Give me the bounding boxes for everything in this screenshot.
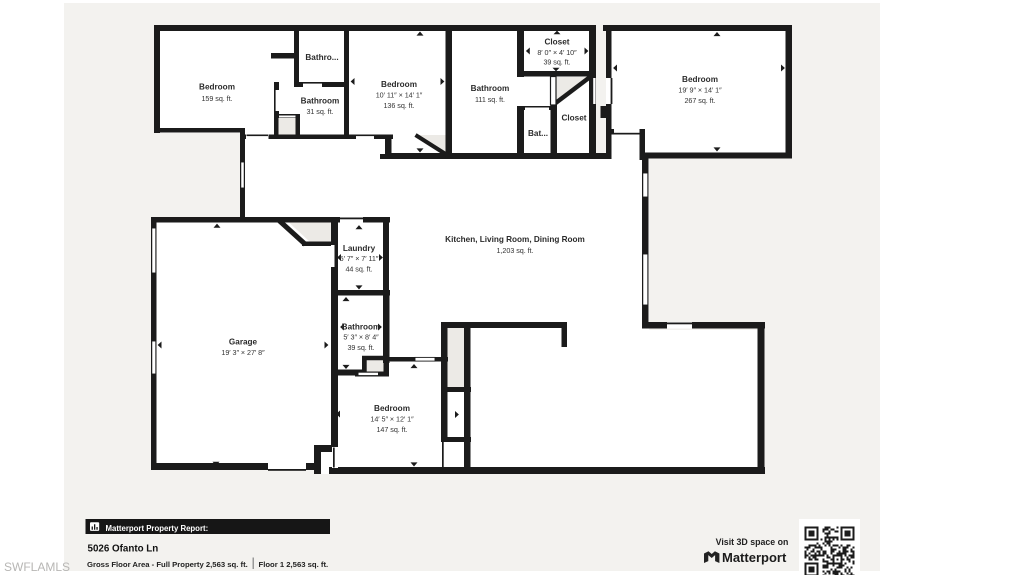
svg-text:Bedroom: Bedroom	[199, 83, 235, 92]
svg-text:136 sq. ft.: 136 sq. ft.	[383, 101, 414, 110]
svg-text:31 sq. ft.: 31 sq. ft.	[306, 107, 333, 116]
svg-text:Bathro...: Bathro...	[305, 53, 338, 62]
svg-text:Bathroom: Bathroom	[342, 323, 381, 332]
svg-text:5026 Ofanto Ln: 5026 Ofanto Ln	[88, 544, 159, 555]
svg-text:5′ 3″ × 8′ 4″: 5′ 3″ × 8′ 4″	[343, 333, 379, 342]
svg-text:Closet: Closet	[561, 114, 586, 123]
svg-text:Kitchen, Living Room, Dining R: Kitchen, Living Room, Dining Room	[445, 235, 585, 244]
svg-text:Bedroom: Bedroom	[381, 80, 417, 89]
svg-text:Matterport: Matterport	[722, 550, 787, 565]
svg-text:39 sq. ft.: 39 sq. ft.	[543, 58, 570, 67]
svg-text:Closet: Closet	[544, 38, 569, 47]
svg-text:10′ 11″ × 14′ 1″: 10′ 11″ × 14′ 1″	[376, 91, 423, 100]
svg-text:1,203 sq. ft.: 1,203 sq. ft.	[497, 246, 534, 255]
svg-text:14′ 5″ × 12′ 1″: 14′ 5″ × 12′ 1″	[370, 415, 414, 424]
svg-text:159 sq. ft.: 159 sq. ft.	[201, 94, 232, 103]
svg-text:19′ 3″ × 27′ 8″: 19′ 3″ × 27′ 8″	[221, 348, 265, 357]
svg-text:111 sq. ft.: 111 sq. ft.	[475, 95, 505, 104]
svg-text:Garage: Garage	[229, 338, 258, 347]
svg-text:39 sq. ft.: 39 sq. ft.	[347, 343, 374, 352]
svg-text:Laundry: Laundry	[343, 244, 376, 253]
svg-text:44 sq. ft.: 44 sq. ft.	[345, 265, 372, 274]
svg-text:Bedroom: Bedroom	[682, 75, 718, 84]
svg-text:Bat...: Bat...	[528, 129, 548, 138]
svg-text:Bedroom: Bedroom	[374, 404, 410, 413]
svg-text:SWFLAMLS: SWFLAMLS	[4, 560, 70, 574]
svg-text:147 sq. ft.: 147 sq. ft.	[376, 425, 407, 434]
svg-text:Bathroom: Bathroom	[301, 97, 340, 106]
svg-text:19′ 9″ × 14′ 1″: 19′ 9″ × 14′ 1″	[678, 86, 722, 95]
svg-text:Floor 1 2,563 sq. ft.: Floor 1 2,563 sq. ft.	[259, 560, 329, 569]
svg-text:267 sq. ft.: 267 sq. ft.	[684, 96, 715, 105]
svg-text:Visit 3D space on: Visit 3D space on	[716, 537, 789, 547]
svg-text:Matterport Property Report:: Matterport Property Report:	[106, 524, 209, 533]
svg-text:Bathroom: Bathroom	[471, 84, 510, 93]
svg-text:8′ 0″ × 4′ 10″: 8′ 0″ × 4′ 10″	[537, 48, 577, 57]
svg-text:5′ 7″ × 7′ 11″: 5′ 7″ × 7′ 11″	[340, 254, 379, 263]
svg-text:Gross Floor Area - Full Proper: Gross Floor Area - Full Property 2,563 s…	[87, 560, 248, 569]
